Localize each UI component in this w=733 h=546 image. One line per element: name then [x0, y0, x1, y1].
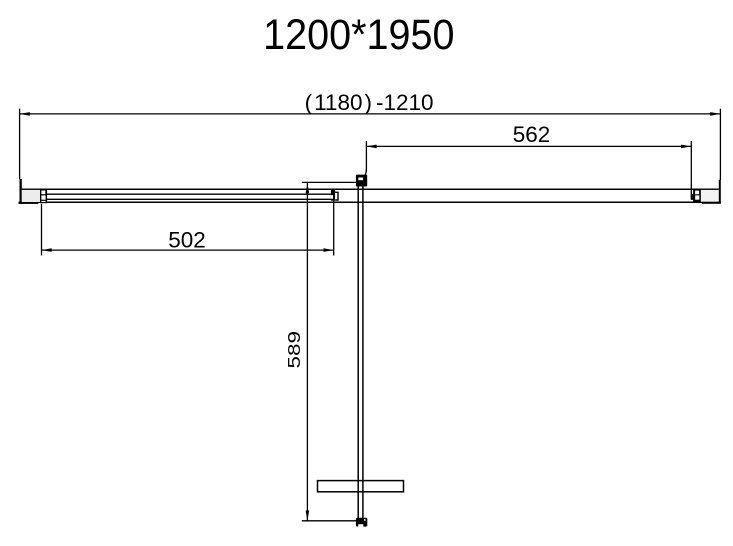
svg-text:502: 502: [168, 228, 206, 253]
svg-text:1200*1950: 1200*1950: [263, 10, 454, 58]
svg-text:(1180)-1210: (1180)-1210: [305, 90, 434, 115]
svg-text:562: 562: [513, 122, 551, 147]
svg-text:589: 589: [285, 331, 304, 369]
